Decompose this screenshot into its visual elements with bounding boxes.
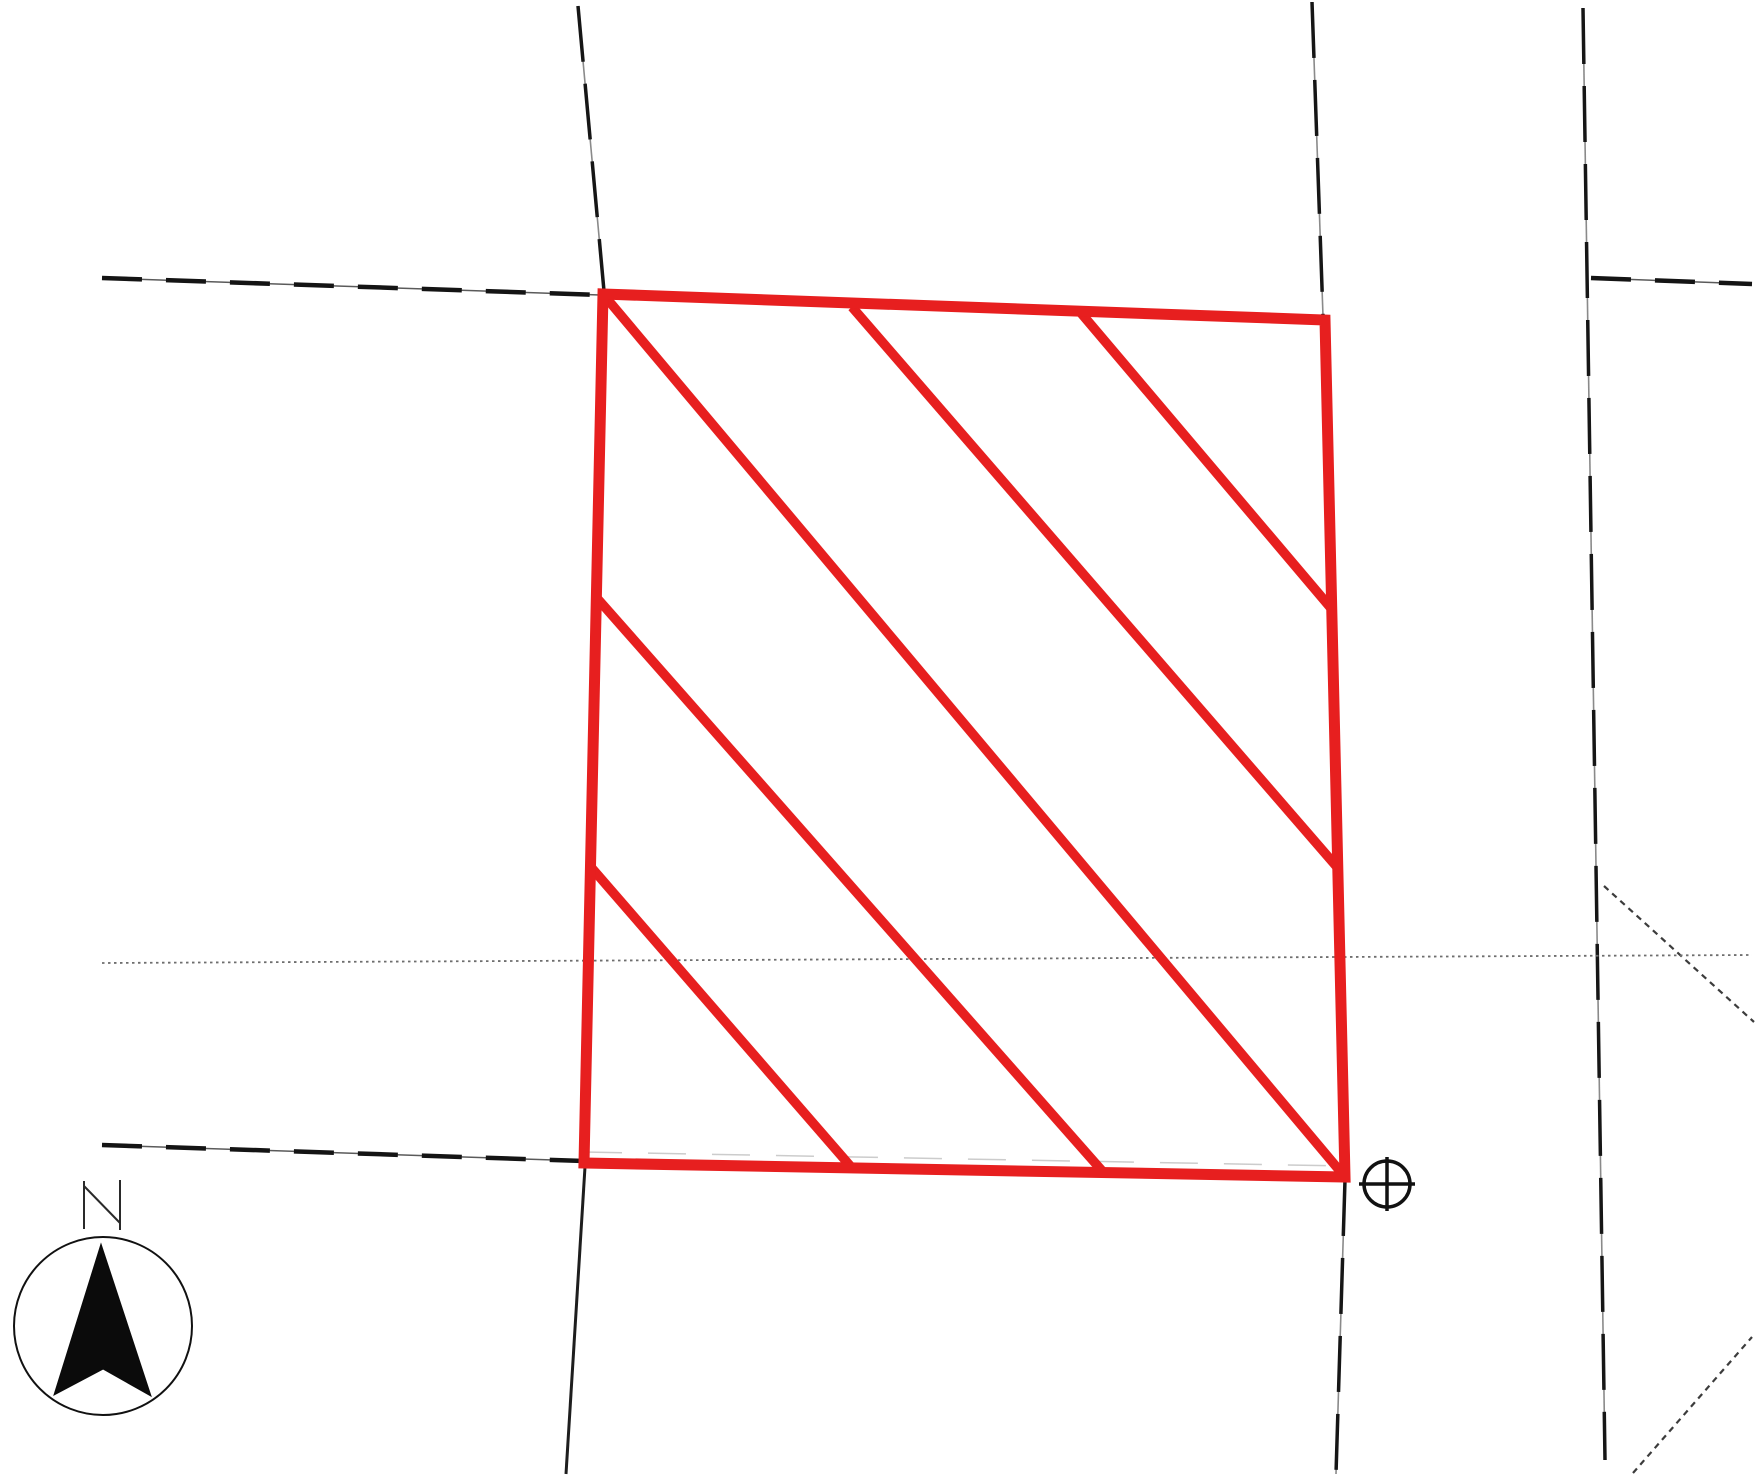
diagonal-bottom-right [1633, 1337, 1752, 1473]
plat-svg [0, 0, 1756, 1475]
parcel-highlight [584, 294, 1345, 1177]
parcel-hatch-line [1081, 313, 1330, 607]
parcel-hatch-line [852, 307, 1337, 867]
road-line-below-parcel-left [566, 1167, 585, 1474]
north-arrow-icon [54, 1244, 151, 1396]
plat-map-page [0, 0, 1756, 1475]
survey-marker [1359, 1157, 1415, 1211]
parcel-hatch-line [590, 866, 852, 1168]
lot-line-topright-dashed [1591, 278, 1752, 284]
branch-diagonal-right [1604, 886, 1754, 1022]
road-line-topcenter-vertical [1312, 2, 1323, 316]
base-boundary-lines [102, 2, 1754, 1474]
parcel-hatch-line [596, 597, 1104, 1173]
north-label [84, 1186, 120, 1223]
north-indicator [14, 1180, 192, 1415]
section-dotted-line [102, 955, 1752, 963]
